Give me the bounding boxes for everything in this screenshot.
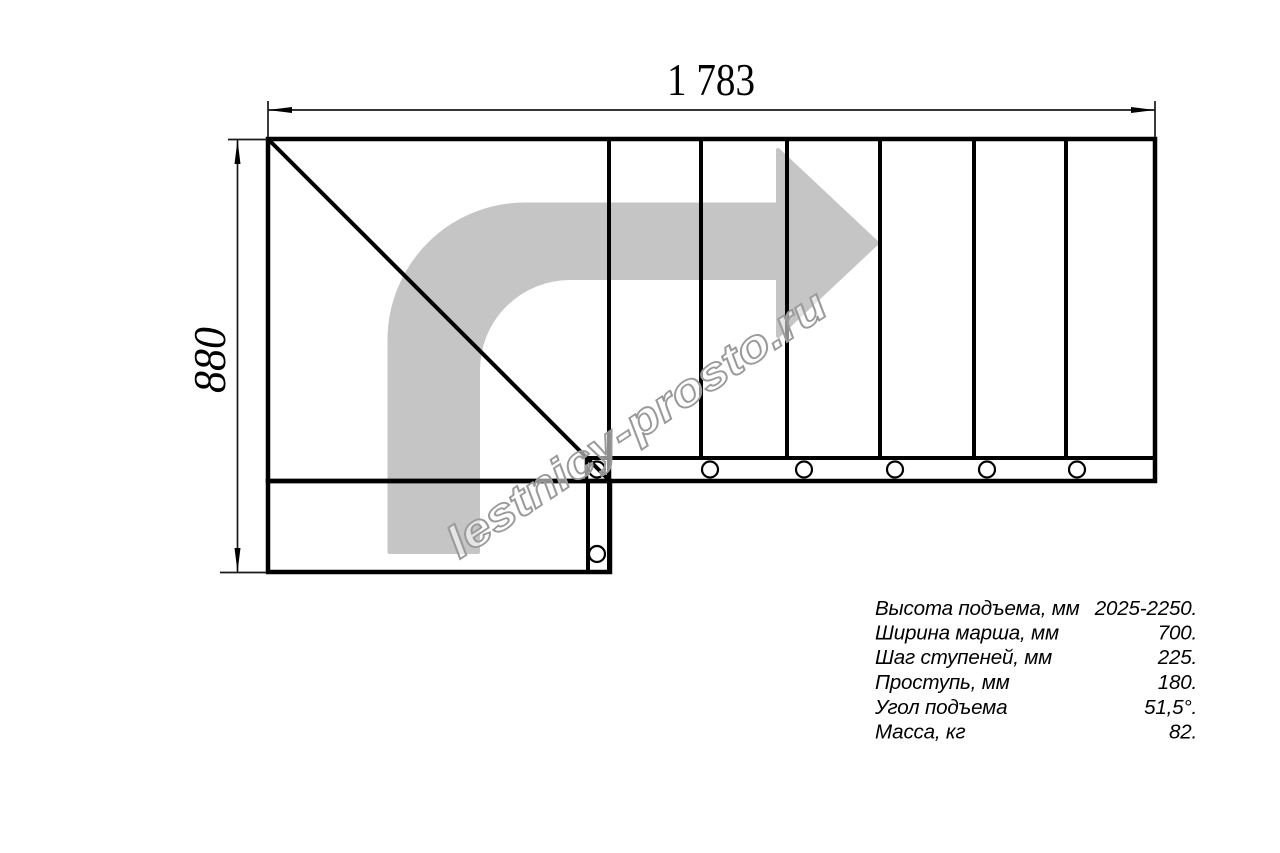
svg-text:Шаг ступеней, мм: Шаг ступеней, мм: [875, 646, 1052, 669]
svg-text:51,5°.: 51,5°.: [1144, 696, 1197, 719]
svg-text:1 783: 1 783: [667, 55, 755, 105]
svg-text:82.: 82.: [1169, 721, 1197, 744]
svg-text:225.: 225.: [1157, 646, 1197, 669]
svg-text:180.: 180.: [1158, 671, 1197, 694]
svg-text:Масса, кг: Масса, кг: [875, 721, 965, 744]
svg-text:880: 880: [185, 327, 235, 393]
svg-text:Высота подъема, мм: Высота подъема, мм: [875, 597, 1080, 620]
svg-text:2025-2250.: 2025-2250.: [1094, 597, 1197, 620]
svg-text:Ширина марша, мм: Ширина марша, мм: [875, 622, 1059, 645]
svg-text:700.: 700.: [1158, 622, 1197, 645]
svg-text:Угол подъема: Угол подъема: [874, 696, 1007, 719]
svg-text:Проступь, мм: Проступь, мм: [875, 671, 1010, 694]
